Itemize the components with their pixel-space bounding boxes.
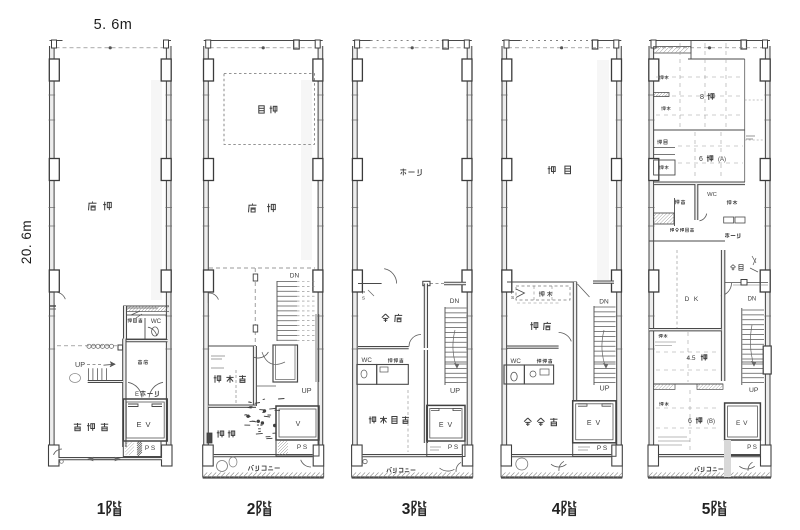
svg-text:P S: P S <box>448 444 459 451</box>
svg-text:6: 6 <box>688 418 692 425</box>
svg-text:E V: E V <box>439 422 453 429</box>
svg-text:4: 4 <box>552 501 561 518</box>
svg-text:E V: E V <box>587 420 601 427</box>
svg-text:4.5: 4.5 <box>686 355 695 362</box>
svg-text:DN: DN <box>748 297 757 303</box>
svg-text:E V: E V <box>736 420 748 427</box>
svg-text:P S: P S <box>145 445 156 452</box>
svg-text:UP: UP <box>450 386 460 395</box>
svg-text:2: 2 <box>247 501 256 518</box>
svg-text:S: S <box>511 295 514 301</box>
svg-text:UP: UP <box>302 386 312 395</box>
svg-text:P: P <box>362 290 365 296</box>
svg-text:WC: WC <box>707 192 717 198</box>
svg-text:P S: P S <box>747 444 757 451</box>
svg-text:S: S <box>362 296 365 302</box>
svg-text:E V: E V <box>136 420 151 429</box>
svg-text:P S: P S <box>597 445 608 452</box>
svg-text:5: 5 <box>702 501 711 518</box>
svg-text:8: 8 <box>700 92 704 101</box>
svg-text:20. 6m: 20. 6m <box>19 220 34 264</box>
svg-text:1: 1 <box>97 501 106 518</box>
svg-text:3: 3 <box>402 501 411 518</box>
svg-text:UP: UP <box>749 387 759 394</box>
svg-text:6: 6 <box>699 156 703 163</box>
svg-text:5. 6m: 5. 6m <box>94 17 133 33</box>
svg-text:(A): (A) <box>718 157 726 163</box>
svg-text:K: K <box>694 296 699 303</box>
svg-text:V: V <box>296 421 301 428</box>
svg-text:WC: WC <box>151 318 162 325</box>
svg-text:UP: UP <box>600 384 610 393</box>
svg-text:D: D <box>685 296 690 303</box>
svg-text:WC: WC <box>362 357 373 364</box>
svg-text:DN: DN <box>599 299 609 306</box>
svg-text:DN: DN <box>450 298 460 305</box>
svg-text:WC: WC <box>511 358 522 365</box>
svg-text:P S: P S <box>297 444 308 451</box>
svg-text:E: E <box>135 392 139 398</box>
svg-text:(B): (B) <box>707 419 715 425</box>
svg-text:DN: DN <box>290 273 300 280</box>
svg-text:UP: UP <box>75 360 85 369</box>
